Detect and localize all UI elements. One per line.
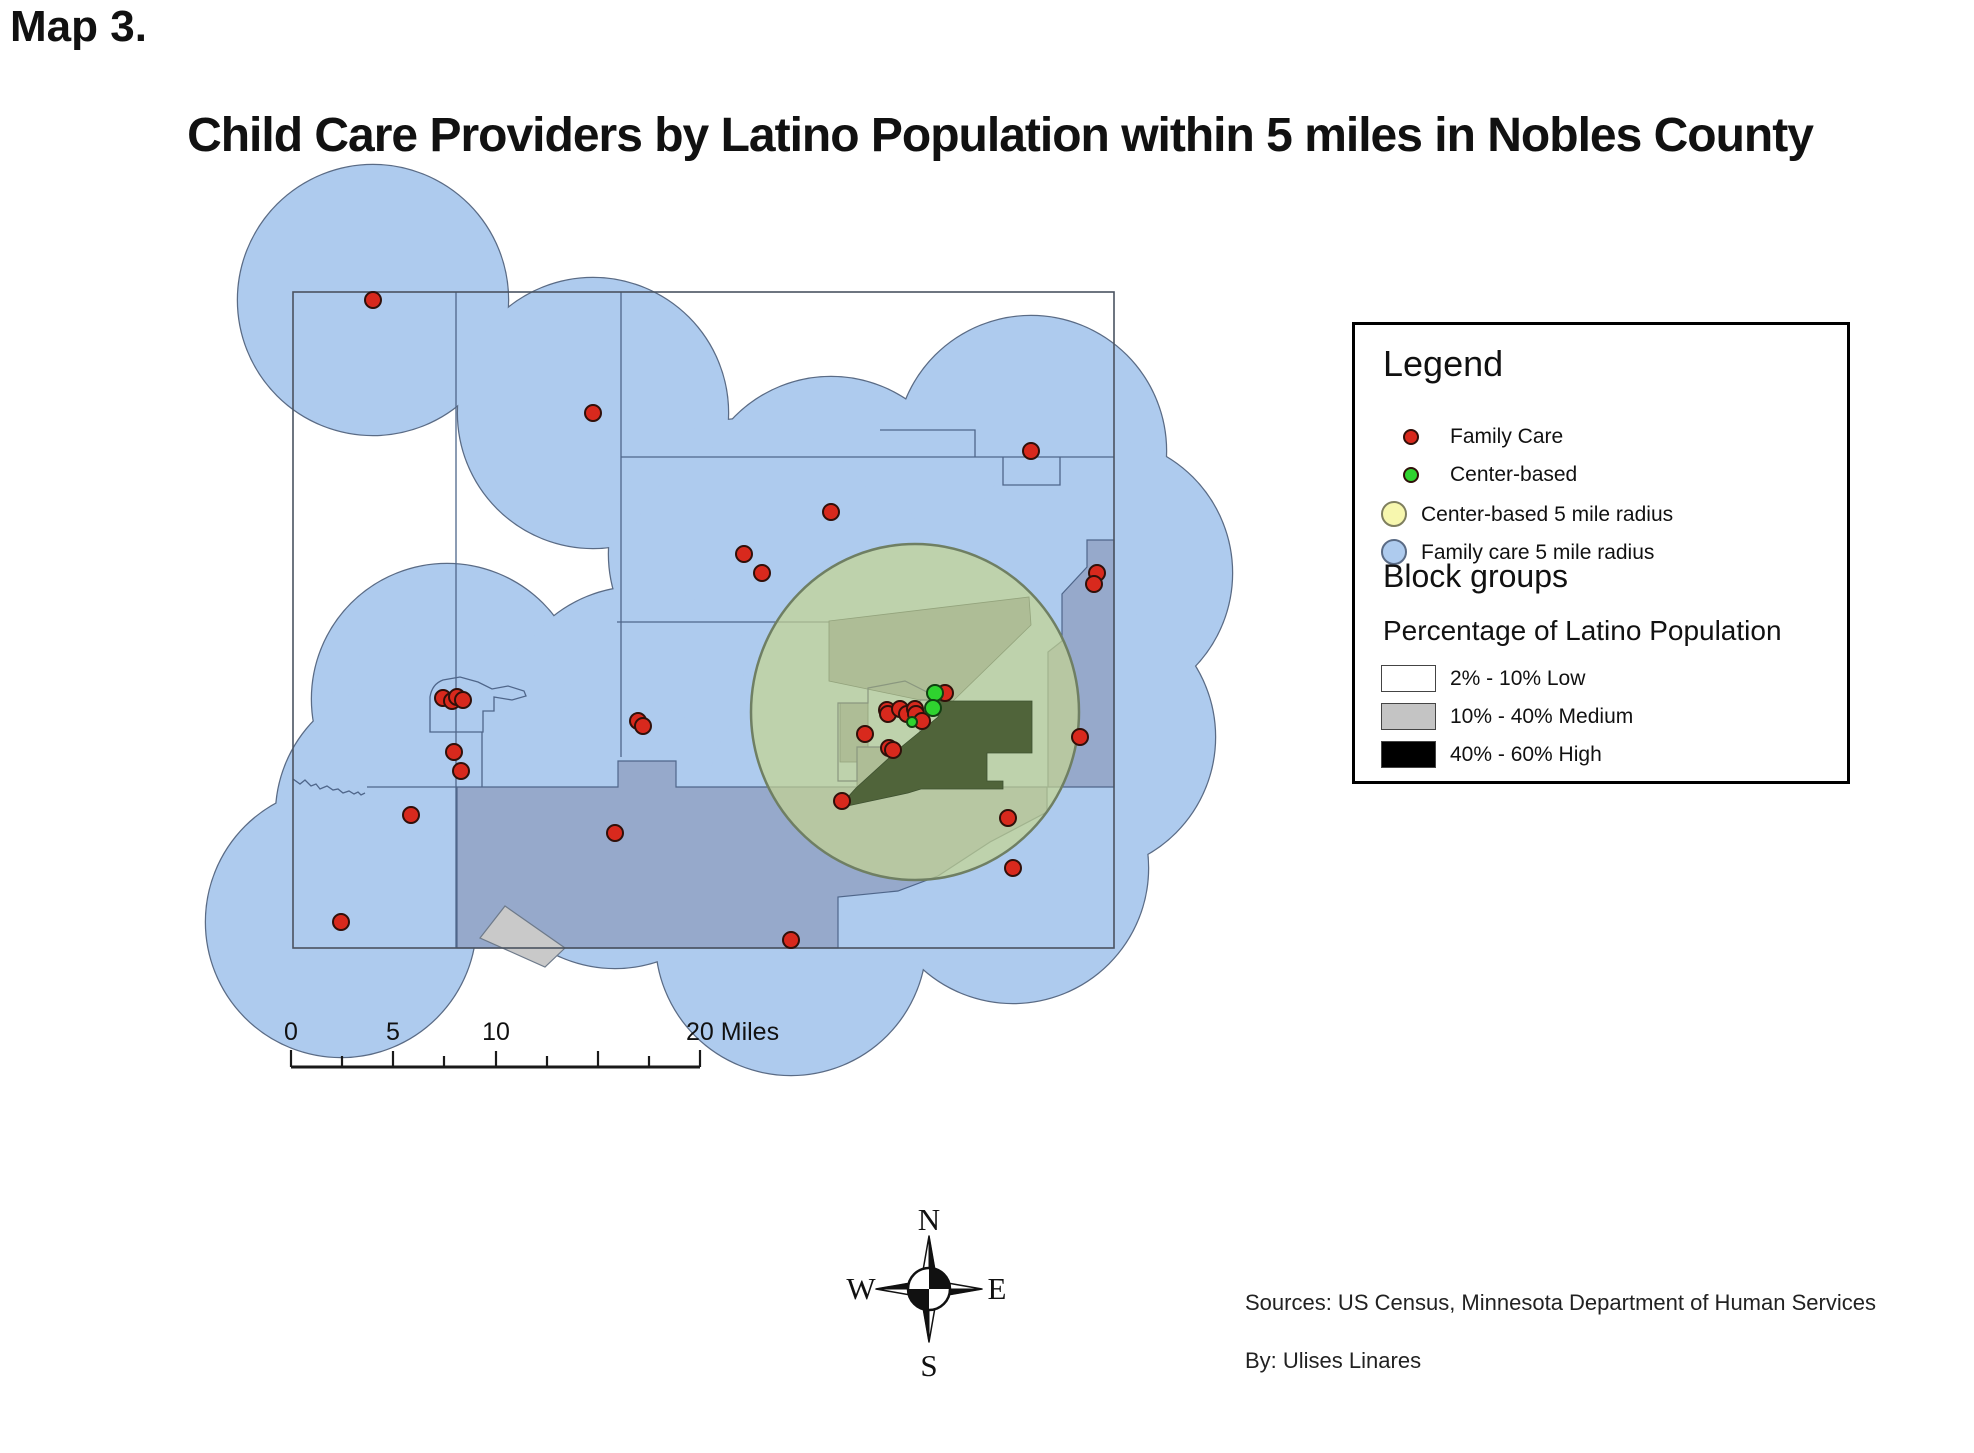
legend-item-center-radius: Center-based 5 mile radius	[1355, 501, 1847, 531]
family-care-provider-dot	[446, 744, 462, 760]
family-care-provider-dot	[834, 793, 850, 809]
family-care-provider-dot	[585, 405, 601, 421]
family-care-provider-dot	[333, 914, 349, 930]
legend-item-label: Family Care	[1450, 425, 1563, 449]
compass-n-label: N	[918, 1202, 940, 1237]
high-swatch-icon	[1381, 741, 1436, 768]
family-care-provider-dot	[455, 692, 471, 708]
legend-subtitle: Percentage of Latino Population	[1383, 615, 1782, 647]
scale-label-10: 10	[482, 1018, 510, 1046]
center-based-dot-icon	[1403, 467, 1419, 483]
legend-class-label: 10% - 40% Medium	[1450, 705, 1633, 729]
legend-item-center-based: Center-based	[1355, 461, 1847, 491]
family-care-provider-dot	[365, 292, 381, 308]
medium-swatch-icon	[1381, 703, 1436, 730]
compass-rose: N E S W	[846, 1202, 1006, 1383]
legend-panel: Legend Family Care Center-based Center-b…	[1352, 322, 1850, 784]
family-care-provider-dot	[1005, 860, 1021, 876]
center-radius-circle-icon	[1381, 501, 1407, 527]
legend-item-label: Center-based 5 mile radius	[1421, 503, 1673, 527]
scale-label-0: 0	[284, 1018, 298, 1046]
family-care-provider-dot	[635, 718, 651, 734]
low-swatch-icon	[1381, 665, 1436, 692]
family-care-dot-icon	[1403, 429, 1419, 445]
family-care-provider-dot	[857, 726, 873, 742]
legend-class-low: 2% - 10% Low	[1355, 665, 1847, 695]
legend-class-medium: 10% - 40% Medium	[1355, 703, 1847, 733]
family-care-provider-dot	[1072, 729, 1088, 745]
family-care-provider-dot	[736, 546, 752, 562]
family-care-provider-dot	[453, 763, 469, 779]
scale-label-20-miles: 20 Miles	[686, 1018, 779, 1046]
legend-title: Legend	[1383, 343, 1503, 385]
family-care-provider-dot	[1023, 443, 1039, 459]
map-figure: Map 3. Child Care Providers by Latino Po…	[0, 0, 1974, 1453]
center-based-provider-dot	[925, 700, 941, 716]
family-care-provider-dot	[823, 504, 839, 520]
scale-label-5: 5	[386, 1018, 400, 1046]
family-care-provider-dot	[754, 565, 770, 581]
legend-class-high: 40% - 60% High	[1355, 741, 1847, 771]
author-text: By: Ulises Linares	[1245, 1348, 1421, 1374]
family-care-provider-dot	[1086, 576, 1102, 592]
family-care-provider-dot	[1000, 810, 1016, 826]
legend-class-label: 2% - 10% Low	[1450, 667, 1585, 691]
family-care-provider-dot	[885, 742, 901, 758]
family-care-provider-dot	[403, 807, 419, 823]
legend-item-label: Center-based	[1450, 463, 1577, 487]
legend-class-label: 40% - 60% High	[1450, 743, 1602, 767]
center-based-provider-dot	[907, 717, 917, 727]
center-based-provider-dot	[927, 685, 943, 701]
family-care-provider-dot	[783, 932, 799, 948]
compass-s-label: S	[920, 1348, 937, 1383]
compass-e-label: E	[988, 1271, 1007, 1306]
legend-block-groups-title: Block groups	[1383, 558, 1568, 595]
compass-w-label: W	[846, 1271, 876, 1306]
family-care-provider-dot	[607, 825, 623, 841]
sources-text: Sources: US Census, Minnesota Department…	[1245, 1290, 1876, 1316]
legend-item-family-care: Family Care	[1355, 423, 1847, 453]
